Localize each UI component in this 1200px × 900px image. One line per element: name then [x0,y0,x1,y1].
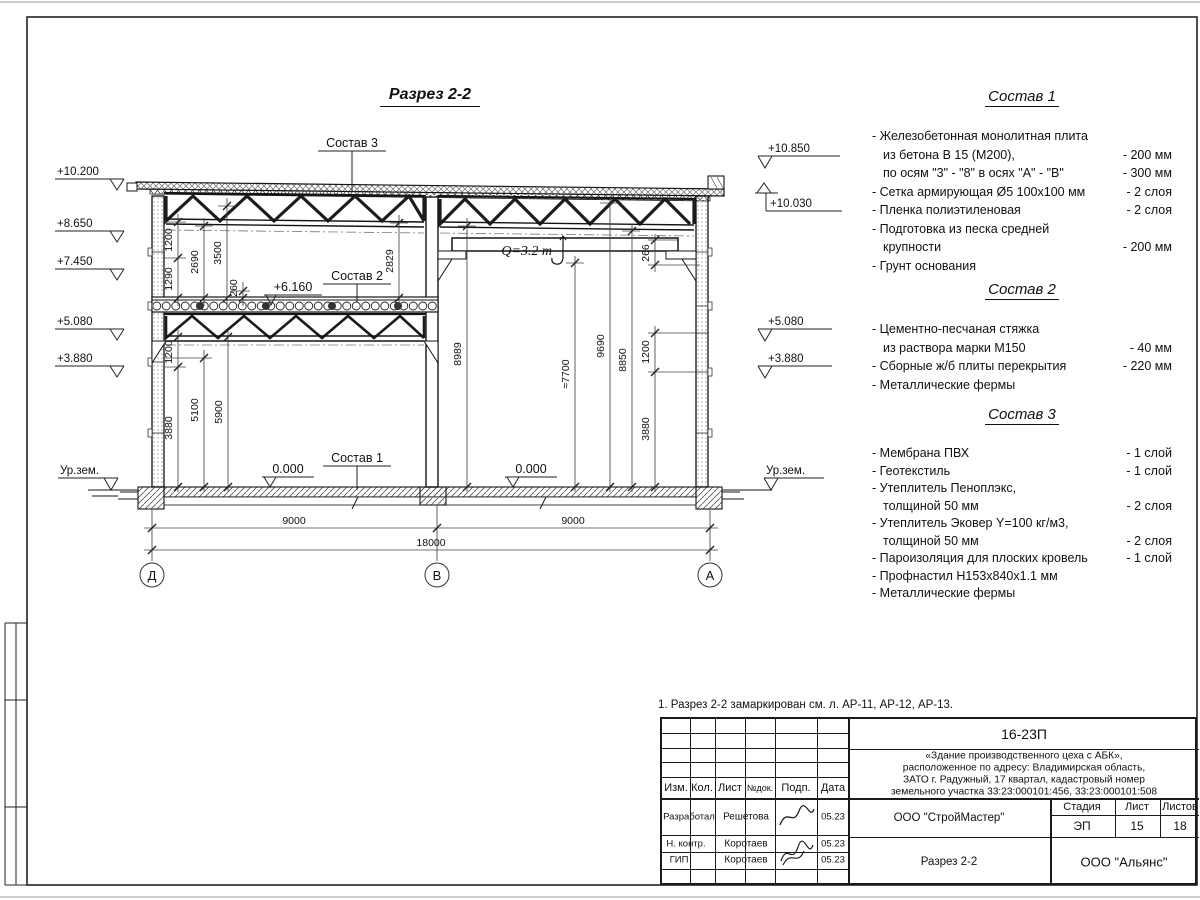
elevation-label: +10.030 [770,198,812,210]
material-line: - Металлические фермы [872,585,1172,603]
mezzanine-floor [152,297,438,363]
elevation-marks-left: +10.200 +8.650 +7.450 +5.080 +3.880 Ур.з… [55,166,124,490]
elevation-label: +5.080 [57,316,93,328]
col-header-podp: Подп. [781,782,810,794]
composition-3: Состав 3 - Мембрана ПВХ- 1 слой - Геотек… [872,406,1172,603]
material-line: толщиной 50 мм- 2 слоя [872,498,1172,516]
sheets-header: Листов [1162,801,1198,813]
roof-edge-drip [127,183,137,191]
elevation-label: +8.650 [57,218,93,230]
grid-line [848,719,850,883]
sheet-number: 15 [1130,819,1143,833]
project-description: «Здание производственного цеха с АБК», [925,751,1122,762]
composition-heading: Состав 2 [872,281,1172,300]
right-wall [696,196,708,487]
elevation-label: +5.080 [768,316,804,328]
composition-2: Состав 2 - Цементно-песчаная стяжка из р… [872,281,1172,394]
elevation-label: +7.450 [57,256,93,268]
material-line: - Цементно-песчаная стяжка [872,320,1172,339]
material-line: - Утеплитель Эковер Y=100 кг/м3, [872,515,1172,533]
right-foundation [696,487,722,509]
row-role: ГИП [670,855,689,866]
dim-label: 9000 [561,515,585,527]
material-line: - Пленка полиэтиленовая- 2 слоя [872,201,1172,220]
row-name: Решетова [723,812,769,823]
callout-sostav3: Состав 3 [326,136,378,150]
dim-label: 1290 [163,267,175,291]
dim-label: 3500 [212,241,224,265]
dim-label: 9690 [595,334,607,358]
grid-line [662,777,849,778]
row-date: 05.23 [821,855,845,866]
callout-sostav1: Состав 1 [331,451,383,465]
material-line: - Геотекстиль- 1 слой [872,463,1172,481]
dim-label: 1200 [163,228,175,252]
grid-line [662,748,849,749]
material-line: - Пароизоляция для плоских кровель- 1 сл… [872,550,1172,568]
callout-sostav2: Состав 2 [331,269,383,283]
dim-label: 9000 [282,515,306,527]
material-line: - Железобетонная монолитная плита [872,127,1172,146]
col-header-izm: Изм. [664,782,688,794]
signature [777,837,817,869]
elevation-label: +10.850 [768,143,810,155]
signature [777,803,817,831]
grid-line [715,719,716,883]
col-header-data: Дата [821,782,845,794]
ground-level-label: Ур.зем. [60,465,99,477]
side-stamp [5,623,27,885]
axis-label: В [433,568,442,583]
sheets-total: 18 [1173,819,1186,833]
sheet-title: Разрез 2-2 [921,856,977,868]
composition-heading: Состав 1 [872,88,1172,107]
material-line: - Металлические фермы [872,376,1172,395]
axis-label: Д [148,568,157,583]
crane-capacity-label: Q=3.2 т [501,244,552,259]
material-line: - Сборные ж/б плиты перекрытия- 220 мм [872,357,1172,376]
dim-label: 5100 [189,398,201,422]
grid-line [662,869,849,870]
dim-label: 260 [228,279,240,297]
grid-line [1115,798,1116,837]
row-date: 05.23 [821,839,845,850]
sheet-header: Лист [1125,801,1149,813]
parapet [708,176,724,189]
drawing-sheet: { "drawing": { "title": "Разрез 2-2", "c… [0,0,1200,900]
project-description: земельного участка 33:23:000101:456, 33:… [891,787,1157,798]
grid-line [662,733,849,734]
composition-1: Состав 1 - Железобетонная монолитная пли… [872,88,1172,275]
row-role: Разработал [663,812,715,823]
row-name: Коротаев [724,839,767,850]
contractor-name: ООО "СтройМастер" [894,812,1005,824]
axis-bubbles: Д В А [140,563,722,587]
row-role: Н. контр. [666,839,705,850]
grid-line [849,837,1199,838]
dim-label: 18000 [416,537,445,549]
stage-value: ЭП [1073,819,1090,833]
grid-line [662,798,1199,800]
col-header-ndok: №док. [747,783,773,793]
elevation-label: +3.880 [57,353,93,365]
dim-label: 3880 [640,417,652,441]
row-name: Коротаев [724,855,767,866]
middle-foundation [420,487,446,505]
col-header-kol: Кол. [691,782,713,794]
dim-label: 1200 [163,340,175,364]
company-name: ООО "Альянс" [1081,855,1168,870]
project-description: ЗАТО г. Радужный, 17 квартал, кадастровы… [903,775,1145,786]
zero-level-label: 0.000 [515,462,546,476]
dim-label: 3880 [163,416,175,440]
elevation-6160-label: +6.160 [274,280,313,294]
title-block: Изм. Кол. Лист №док. Подп. Дата Разработ… [660,717,1197,885]
elevation-label: +3.880 [768,353,804,365]
material-line: по осям "3" - "8" в осях "А" - "В"- 300 … [872,164,1172,183]
material-line: из бетона В 15 (М200),- 200 мм [872,146,1172,165]
dim-label: 266 [640,244,652,262]
grid-line [1050,798,1052,883]
row-date: 05.23 [821,812,845,823]
material-line: из раствора марки М150- 40 мм [872,339,1172,358]
stage-header: Стадия [1063,801,1101,813]
elevation-label: +10.200 [57,166,99,178]
left-foundation [138,487,164,509]
col-header-list: Лист [718,782,742,794]
elevation-marks-right: +10.850 +10.030 +5.080 +3.880 Ур.зем. [755,143,842,490]
material-line: - Мембрана ПВХ- 1 слой [872,445,1172,463]
grid-line [817,719,818,883]
grid-line [690,719,691,883]
grid-line [662,835,849,836]
dim-label: 8989 [452,342,464,366]
grid-line [775,719,776,883]
zero-level-label: 0.000 [272,462,303,476]
ground-level-label: Ур.зем. [766,465,805,477]
material-line: - Грунт основания [872,257,1172,276]
drawing-title: Разрез 2-2 [380,86,480,107]
material-line: - Утеплитель Пеноплэкс, [872,480,1172,498]
dim-label: 1200 [640,340,652,364]
grid-line [662,852,849,853]
ground-floor [88,487,772,509]
material-line: толщиной 50 мм- 2 слоя [872,533,1172,551]
project-description: расположенное по адресу: Владимирская об… [903,763,1145,774]
dim-label: 8850 [617,348,629,372]
dim-label: ≈7700 [560,359,572,388]
material-line: - Подготовка из песка средней [872,220,1172,239]
sheet-note: 1. Разрез 2-2 замаркирован см. л. АР-11,… [658,699,1088,711]
grid-line [662,762,849,763]
material-line: - Сетка армирующая Ø5 100х100 мм- 2 слоя [872,183,1172,202]
crane-beam [438,236,696,281]
material-line: крупности- 200 мм [872,238,1172,257]
doc-number: 16-23П [1001,726,1047,742]
dim-label: 2829 [384,249,396,273]
material-line: - Профнастил Н153х840х1.1 мм [872,568,1172,586]
composition-heading: Состав 3 [872,406,1172,425]
dim-label: 5900 [213,400,225,424]
dim-label: 2690 [189,250,201,274]
axis-label: А [706,568,715,583]
grid-line [1160,798,1161,837]
grid-line [1050,815,1199,816]
